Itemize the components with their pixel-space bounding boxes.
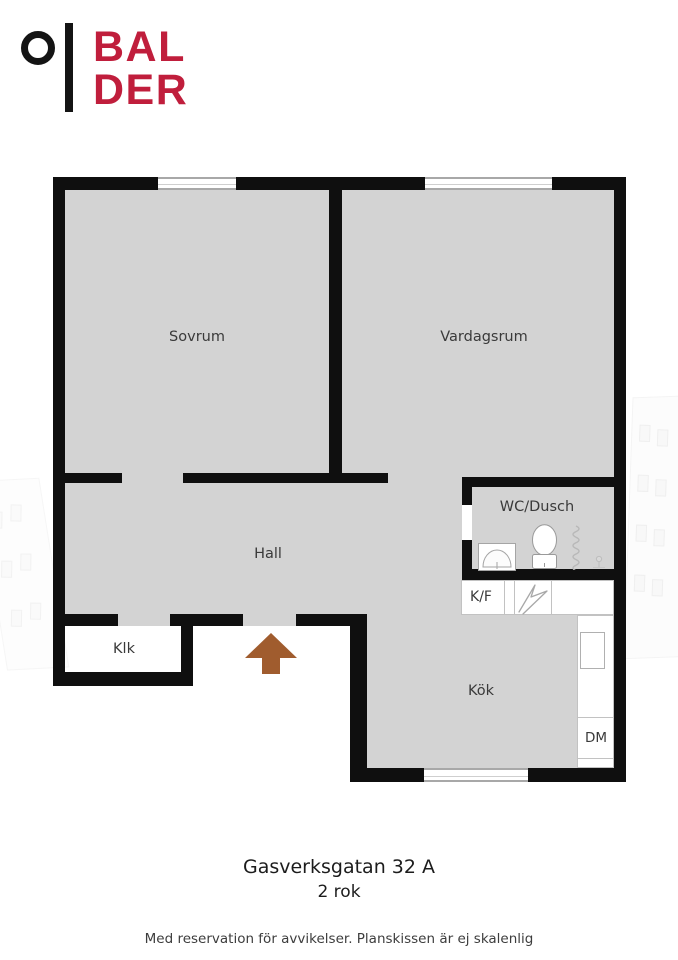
window-kok <box>424 768 528 782</box>
stove-icon <box>515 581 551 615</box>
bathroom-sink-icon <box>478 543 516 571</box>
window-vardagsrum <box>425 177 552 190</box>
wall-hall-top-b <box>183 473 388 483</box>
label-hall: Hall <box>254 546 282 562</box>
logo-word-bottom: DER <box>93 69 188 112</box>
plan-caption: Gasverksgatan 32 A 2 rok <box>0 856 678 902</box>
shower-curtain-icon <box>569 524 583 570</box>
label-wc-dusch: WC/Dusch <box>500 499 574 515</box>
kitchen-sink-icon <box>580 632 605 669</box>
label-vardagsrum: Vardagsrum <box>440 329 528 345</box>
entrance-arrow-icon <box>245 633 297 674</box>
logo-word-top: BAL <box>93 26 186 69</box>
disclaimer-text: Med reservation för avvikelser. Planskis… <box>0 931 678 947</box>
address-text: Gasverksgatan 32 A <box>0 856 678 878</box>
room-count-text: 2 rok <box>0 882 678 902</box>
label-dm: DM <box>585 730 607 746</box>
label-kok: Kök <box>468 683 494 699</box>
wall-right <box>614 190 626 782</box>
wall-hall-top-a <box>65 473 122 483</box>
balder-logo-bar-icon <box>65 23 73 112</box>
window-sovrum <box>158 177 236 190</box>
label-klk: Klk <box>113 641 135 657</box>
wall-left <box>53 190 65 686</box>
balder-logo-circle-icon <box>21 31 55 65</box>
label-sovrum: Sovrum <box>169 329 225 345</box>
wall-kitchen-left <box>350 614 367 782</box>
wall-hall-bottom-a <box>53 614 118 626</box>
wall-wc-top <box>472 477 614 487</box>
floor-drain-icon <box>591 554 607 571</box>
wall-sovrum-vardagsrum <box>329 190 342 473</box>
balder-logo: BAL DER <box>0 0 260 140</box>
wall-klk-right <box>181 614 193 686</box>
wall-bottom-klk <box>53 672 193 686</box>
toilet-icon <box>530 524 559 570</box>
label-kf: K/F <box>470 589 492 605</box>
wall-wc-left-upper <box>462 477 472 505</box>
